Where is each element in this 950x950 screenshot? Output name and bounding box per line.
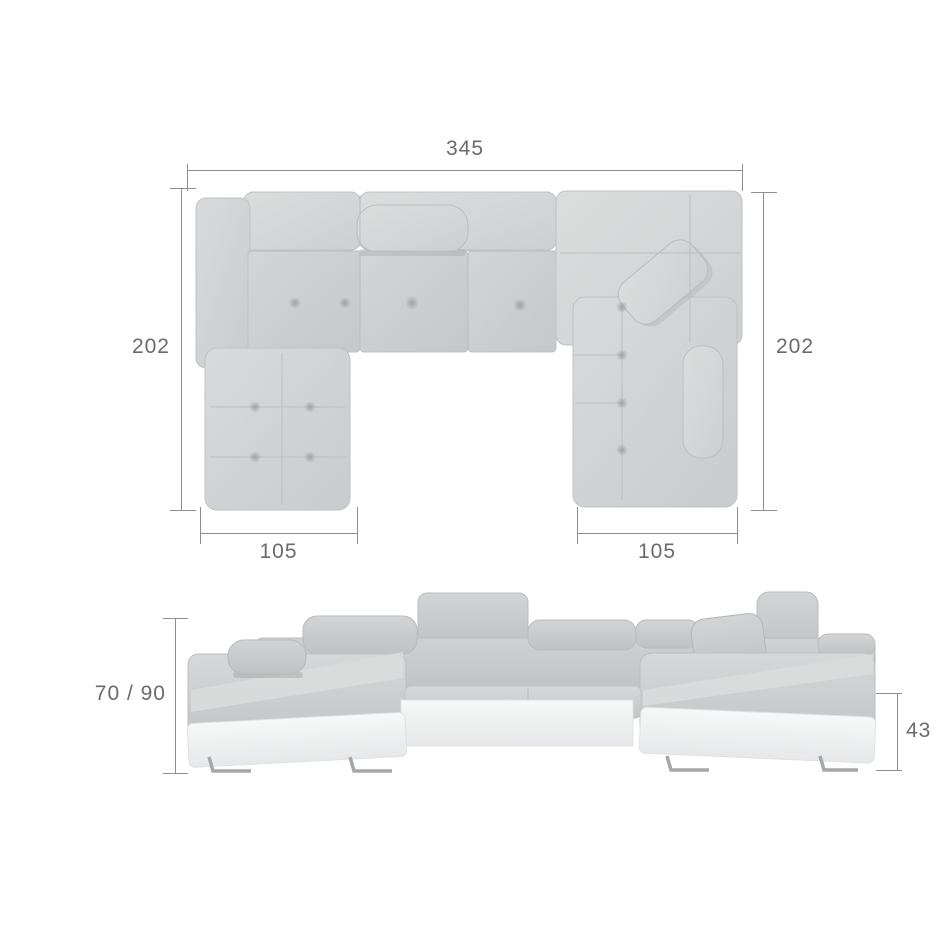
dim-label-total-width: 345 xyxy=(420,138,510,160)
dim-tick-start xyxy=(163,618,188,619)
dim-tick-end xyxy=(876,770,902,771)
dim-tick-end xyxy=(751,510,777,511)
top-view-headrest-pillow xyxy=(357,205,468,256)
dim-tick-start xyxy=(876,693,902,694)
dim-line-right-chaise xyxy=(577,533,737,534)
sofa-top-view-illustration xyxy=(190,185,750,515)
dim-line-left-chaise xyxy=(200,533,357,534)
dim-tick-start xyxy=(200,507,201,544)
dim-label-right-chaise-width: 105 xyxy=(577,541,737,563)
sofa-dimension-diagram: 345 202 202 105 105 70 / 90 xyxy=(0,0,950,950)
dim-tick-start xyxy=(170,188,196,189)
dim-tick-start xyxy=(187,164,188,191)
dim-tick-start xyxy=(577,507,578,544)
front-view-center-headrest xyxy=(418,593,528,645)
dim-tick-end xyxy=(170,510,196,511)
top-view-right-arm-cushion xyxy=(683,346,723,458)
dim-line-right-depth xyxy=(763,192,764,511)
dim-line-total-width xyxy=(187,170,743,171)
top-view-left-armrest xyxy=(196,198,250,368)
dim-line-backrest-height xyxy=(175,618,176,774)
dim-tick-start xyxy=(751,192,777,193)
dim-label-right-depth: 202 xyxy=(776,336,846,358)
dim-tick-end xyxy=(163,773,188,774)
dim-label-left-chaise-width: 105 xyxy=(200,541,357,563)
dim-label-seat-height: 43 xyxy=(906,720,950,742)
dim-tick-end xyxy=(742,164,743,191)
dim-label-left-depth: 202 xyxy=(100,336,170,358)
dim-line-left-depth xyxy=(181,188,182,510)
dim-label-backrest-height: 70 / 90 xyxy=(58,683,166,705)
top-view-left-chaise xyxy=(205,348,350,510)
dim-tick-end xyxy=(357,507,358,544)
dim-line-seat-height xyxy=(897,693,898,771)
sofa-front-view-illustration xyxy=(185,588,885,778)
dim-tick-end xyxy=(737,507,738,544)
